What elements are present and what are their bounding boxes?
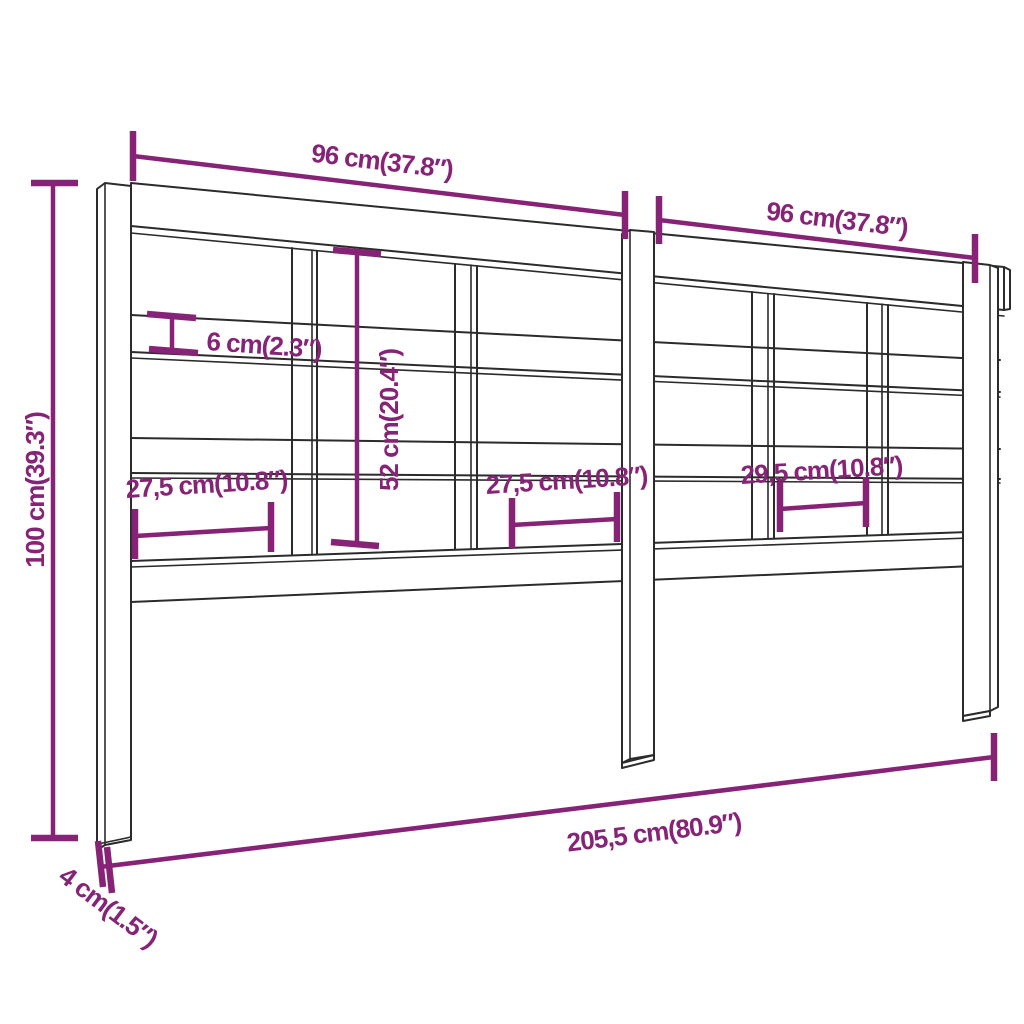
cross-rail-lower-top-edge [131, 438, 1000, 449]
dimension-total-width: 205,5 cm(80.9″) [100, 733, 994, 867]
middle-post-face [622, 230, 654, 763]
right-post-face [963, 262, 998, 716]
section-width-3-label: 29,5 cm(10.8″) [740, 450, 904, 490]
dimension-total-height: 100 cm(39.3″) [20, 183, 78, 838]
middle-post [622, 230, 654, 768]
leg-thickness-tick-b [107, 847, 112, 893]
rail-thickness-bottom-tick [149, 349, 198, 353]
slat-2 [455, 264, 477, 550]
slat-3 [752, 292, 774, 540]
total-height-label: 100 cm(39.3″) [20, 412, 50, 568]
top-width-left-label: 96 cm(37.8″) [310, 138, 455, 185]
dimension-rail-thickness: 6 cm(2.3″) [147, 314, 323, 364]
total-width-label: 205,5 cm(80.9″) [565, 806, 743, 857]
section-width-1-line [135, 528, 271, 536]
dimension-section-width-3: 29,5 cm(10.8″) [740, 450, 904, 532]
section-width-1-label: 27,5 cm(10.8″) [125, 464, 289, 504]
slat-4 [867, 303, 888, 536]
left-post-face [97, 183, 131, 850]
cross-rail-upper-bevel [131, 358, 1000, 397]
rail-thickness-label: 6 cm(2.3″) [206, 326, 323, 364]
section-width-3-line [780, 503, 866, 509]
section-width-2-line [512, 519, 617, 525]
dimension-section-width-1: 27,5 cm(10.8″) [125, 464, 289, 559]
top-rail-end-cap [1004, 267, 1010, 310]
headboard-dimension-diagram: 100 cm(39.3″) 96 cm(37.8″) 96 cm(37.8″) … [0, 0, 1024, 1024]
dimension-inner-height: 52 cm(20.4″) [331, 250, 404, 546]
total-width-line [100, 757, 994, 867]
headboard-drawing [97, 183, 1010, 850]
slat-1 [292, 248, 317, 556]
left-post [97, 183, 131, 850]
dimension-leg-thickness: 4 cm(1.5″) [53, 841, 163, 954]
right-post [963, 262, 998, 721]
diagram-canvas: 100 cm(39.3″) 96 cm(37.8″) 96 cm(37.8″) … [0, 0, 1024, 1024]
bottom-rail [131, 531, 998, 602]
inner-height-top-tick [333, 250, 381, 254]
rail-thickness-top-tick [147, 314, 196, 318]
inner-height-label: 52 cm(20.4″) [374, 349, 404, 491]
inner-height-bottom-tick [331, 542, 379, 546]
